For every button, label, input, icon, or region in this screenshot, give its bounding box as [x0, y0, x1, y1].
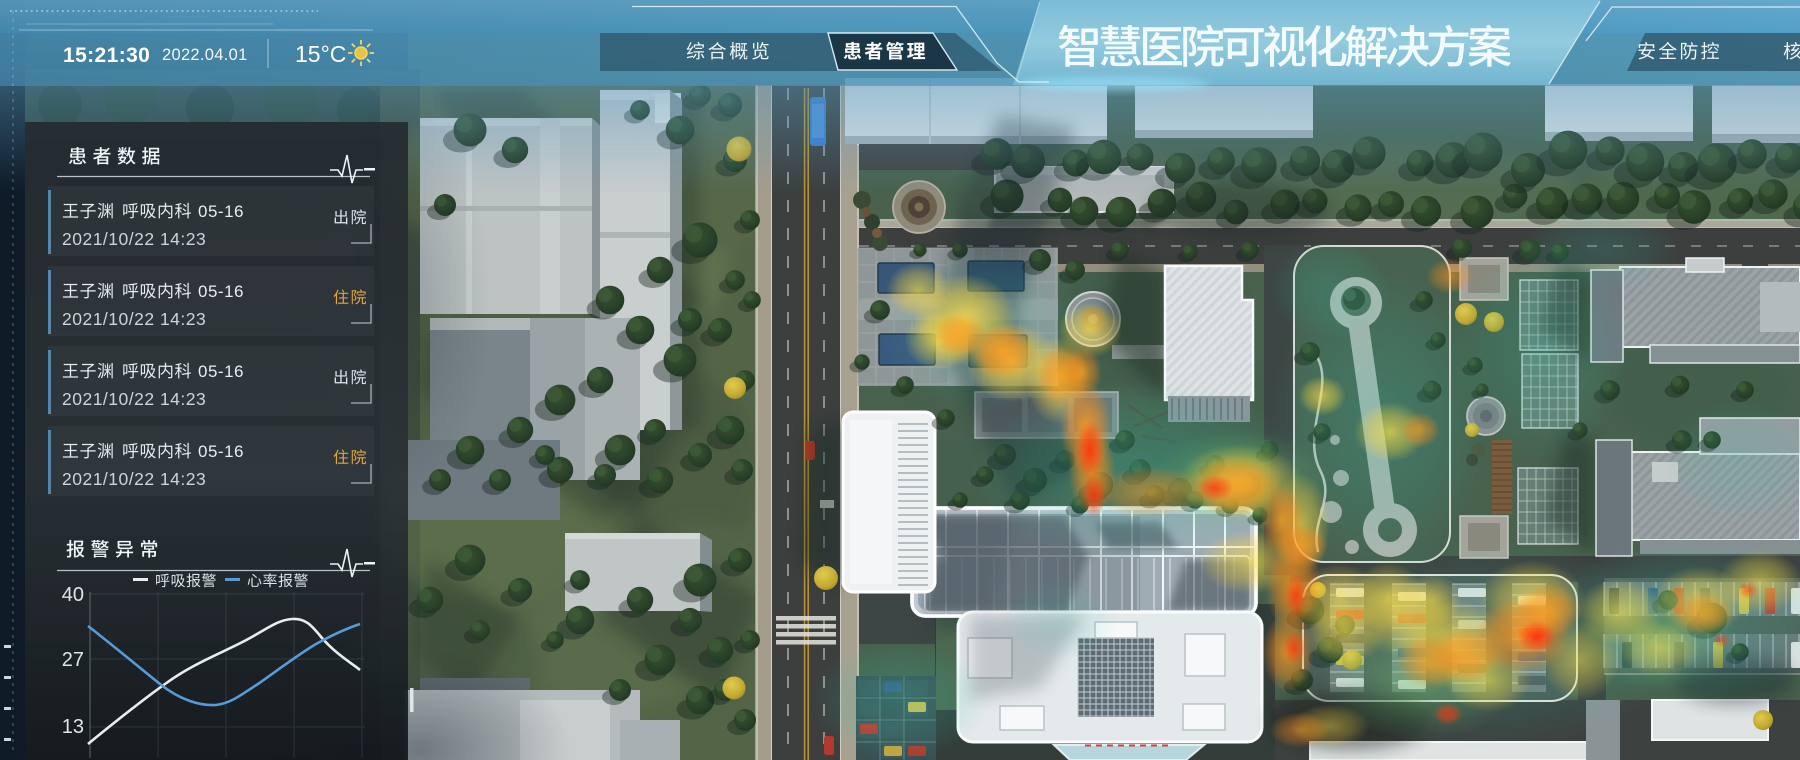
svg-text:05-16: 05-16	[198, 282, 244, 301]
svg-text:2022.04.01: 2022.04.01	[162, 46, 248, 64]
svg-text:13: 13	[62, 716, 84, 738]
svg-text:15:21:30: 15:21:30	[63, 44, 150, 67]
svg-text:15°C: 15°C	[295, 41, 346, 67]
svg-text:2021/10/22 14:23: 2021/10/22 14:23	[62, 309, 206, 329]
svg-text:27: 27	[62, 649, 84, 671]
svg-text:05-16: 05-16	[198, 442, 244, 461]
svg-text:05-16: 05-16	[198, 202, 244, 221]
svg-text:2021/10/22 14:23: 2021/10/22 14:23	[62, 469, 206, 489]
svg-text:40: 40	[62, 584, 84, 606]
svg-text:2021/10/22 14:23: 2021/10/22 14:23	[62, 229, 206, 249]
svg-text:2021/10/22 14:23: 2021/10/22 14:23	[62, 389, 206, 409]
svg-text:05-16: 05-16	[198, 362, 244, 381]
